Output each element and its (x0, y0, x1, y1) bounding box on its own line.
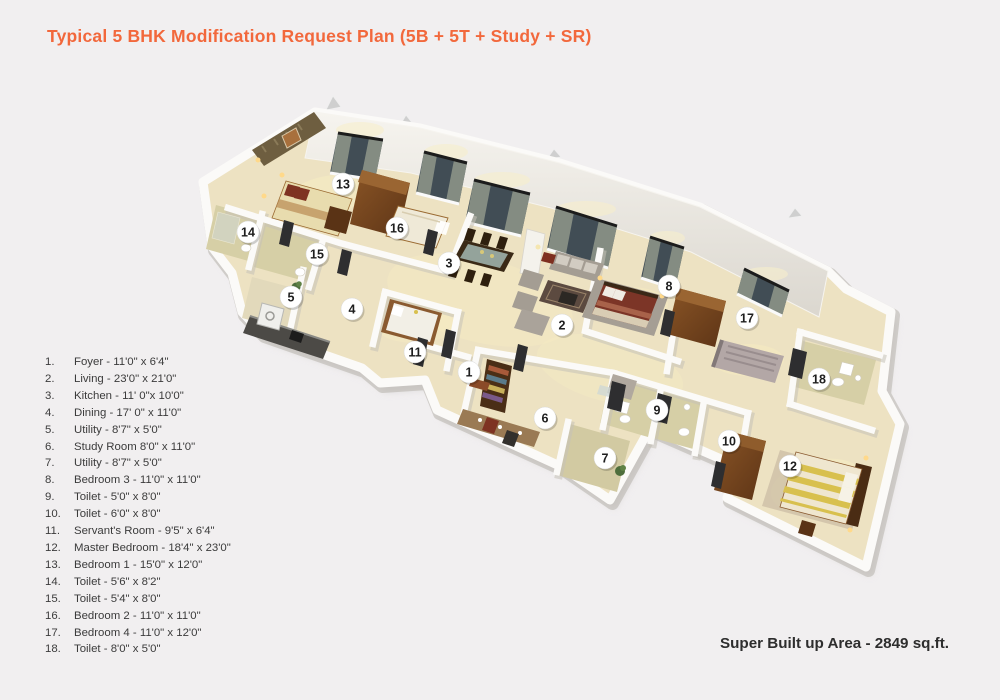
svg-text:9: 9 (654, 404, 661, 418)
svg-text:8: 8 (666, 280, 673, 294)
svg-text:12: 12 (783, 460, 797, 474)
legend-item: 5.Utility - 8'7" x 5'0" (45, 422, 231, 439)
svg-text:5: 5 (288, 291, 295, 305)
legend-item: 12.Master Bedroom - 18'4" x 23'0" (45, 540, 231, 557)
legend-item-number: 9. (45, 489, 74, 506)
legend-item: 10.Toilet - 6'0" x 8'0" (45, 506, 231, 523)
legend-item-number: 3. (45, 388, 74, 405)
legend-item-number: 1. (45, 354, 74, 371)
legend-item: 6.Study Room 8'0" x 11'0" (45, 439, 231, 456)
floor-plan-page: Typical 5 BHK Modification Request Plan … (0, 0, 1000, 700)
svg-text:14: 14 (241, 226, 255, 240)
svg-text:4: 4 (349, 303, 356, 317)
legend-item: 8.Bedroom 3 - 11'0" x 11'0" (45, 472, 231, 489)
legend-item-number: 18. (45, 641, 74, 658)
legend-item: 2.Living - 23'0" x 21'0" (45, 371, 231, 388)
legend-item-label: Toilet - 6'0" x 8'0" (74, 506, 161, 523)
legend-item: 3.Kitchen - 11' 0"x 10'0" (45, 388, 231, 405)
svg-text:17: 17 (740, 312, 754, 326)
svg-text:18: 18 (812, 373, 826, 387)
legend-item-number: 17. (45, 625, 74, 642)
legend-item-label: Toilet - 8'0" x 5'0" (74, 641, 161, 658)
window-2 (416, 152, 467, 204)
legend-item: 4.Dining - 17' 0" x 11'0" (45, 405, 231, 422)
legend-item: 1.Foyer - 11'0" x 6'4" (45, 354, 231, 371)
legend-item-label: Bedroom 2 - 11'0" x 11'0" (74, 608, 201, 625)
legend-item-label: Bedroom 1 - 15'0" x 12'0" (74, 557, 202, 574)
legend-item-label: Toilet - 5'4" x 8'0" (74, 591, 161, 608)
legend-item-number: 11. (45, 523, 74, 540)
legend-item-label: Toilet - 5'6" x 8'2" (74, 574, 161, 591)
legend-item-number: 15. (45, 591, 74, 608)
legend-item-number: 6. (45, 439, 74, 456)
built-up-area-note: Super Built up Area - 2849 sq.ft. (720, 635, 949, 652)
legend-item-label: Study Room 8'0" x 11'0" (74, 439, 195, 456)
svg-text:6: 6 (542, 412, 549, 426)
legend-item-label: Toilet - 5'0" x 8'0" (74, 489, 161, 506)
legend-item-label: Master Bedroom - 18'4" x 23'0" (74, 540, 231, 557)
legend-item-label: Kitchen - 11' 0"x 10'0" (74, 388, 184, 405)
legend-item-number: 10. (45, 506, 74, 523)
svg-text:13: 13 (336, 178, 350, 192)
legend-item-number: 13. (45, 557, 74, 574)
legend-item-label: Utility - 8'7" x 5'0" (74, 455, 162, 472)
legend-item-label: Dining - 17' 0" x 11'0" (74, 405, 181, 422)
legend-item: 7.Utility - 8'7" x 5'0" (45, 455, 231, 472)
legend-item: 18.Toilet - 8'0" x 5'0" (45, 641, 231, 658)
legend-item-number: 5. (45, 422, 74, 439)
svg-text:1: 1 (466, 366, 473, 380)
svg-text:7: 7 (602, 452, 609, 466)
svg-text:11: 11 (408, 346, 421, 360)
legend-item-number: 12. (45, 540, 74, 557)
legend-item: 11.Servant's Room - 9'5" x 6'4" (45, 523, 231, 540)
legend-item: 9.Toilet - 5'0" x 8'0" (45, 489, 231, 506)
legend-item: 13.Bedroom 1 - 15'0" x 12'0" (45, 557, 231, 574)
svg-text:16: 16 (390, 222, 404, 236)
legend-item: 16.Bedroom 2 - 11'0" x 11'0" (45, 608, 231, 625)
legend-item-label: Foyer - 11'0" x 6'4" (74, 354, 169, 371)
legend-item: 14.Toilet - 5'6" x 8'2" (45, 574, 231, 591)
legend-item-label: Bedroom 3 - 11'0" x 11'0" (74, 472, 201, 489)
legend-item-label: Bedroom 4 - 11'0" x 12'0" (74, 625, 201, 642)
svg-text:2: 2 (559, 319, 566, 333)
legend-item-number: 8. (45, 472, 74, 489)
svg-text:10: 10 (722, 435, 736, 449)
room-legend: 1.Foyer - 11'0" x 6'4"2.Living - 23'0" x… (45, 354, 231, 658)
legend-item-number: 7. (45, 455, 74, 472)
legend-item: 15.Toilet - 5'4" x 8'0" (45, 591, 231, 608)
legend-item-number: 2. (45, 371, 74, 388)
legend-item-label: Utility - 8'7" x 5'0" (74, 422, 162, 439)
legend-item-number: 14. (45, 574, 74, 591)
svg-text:15: 15 (310, 248, 324, 262)
window-1 (330, 133, 383, 180)
legend-item-number: 16. (45, 608, 74, 625)
legend-item-label: Living - 23'0" x 21'0" (74, 371, 176, 388)
legend-item-number: 4. (45, 405, 74, 422)
legend-item: 17.Bedroom 4 - 11'0" x 12'0" (45, 625, 231, 642)
svg-text:3: 3 (446, 257, 453, 271)
legend-item-label: Servant's Room - 9'5" x 6'4" (74, 523, 215, 540)
